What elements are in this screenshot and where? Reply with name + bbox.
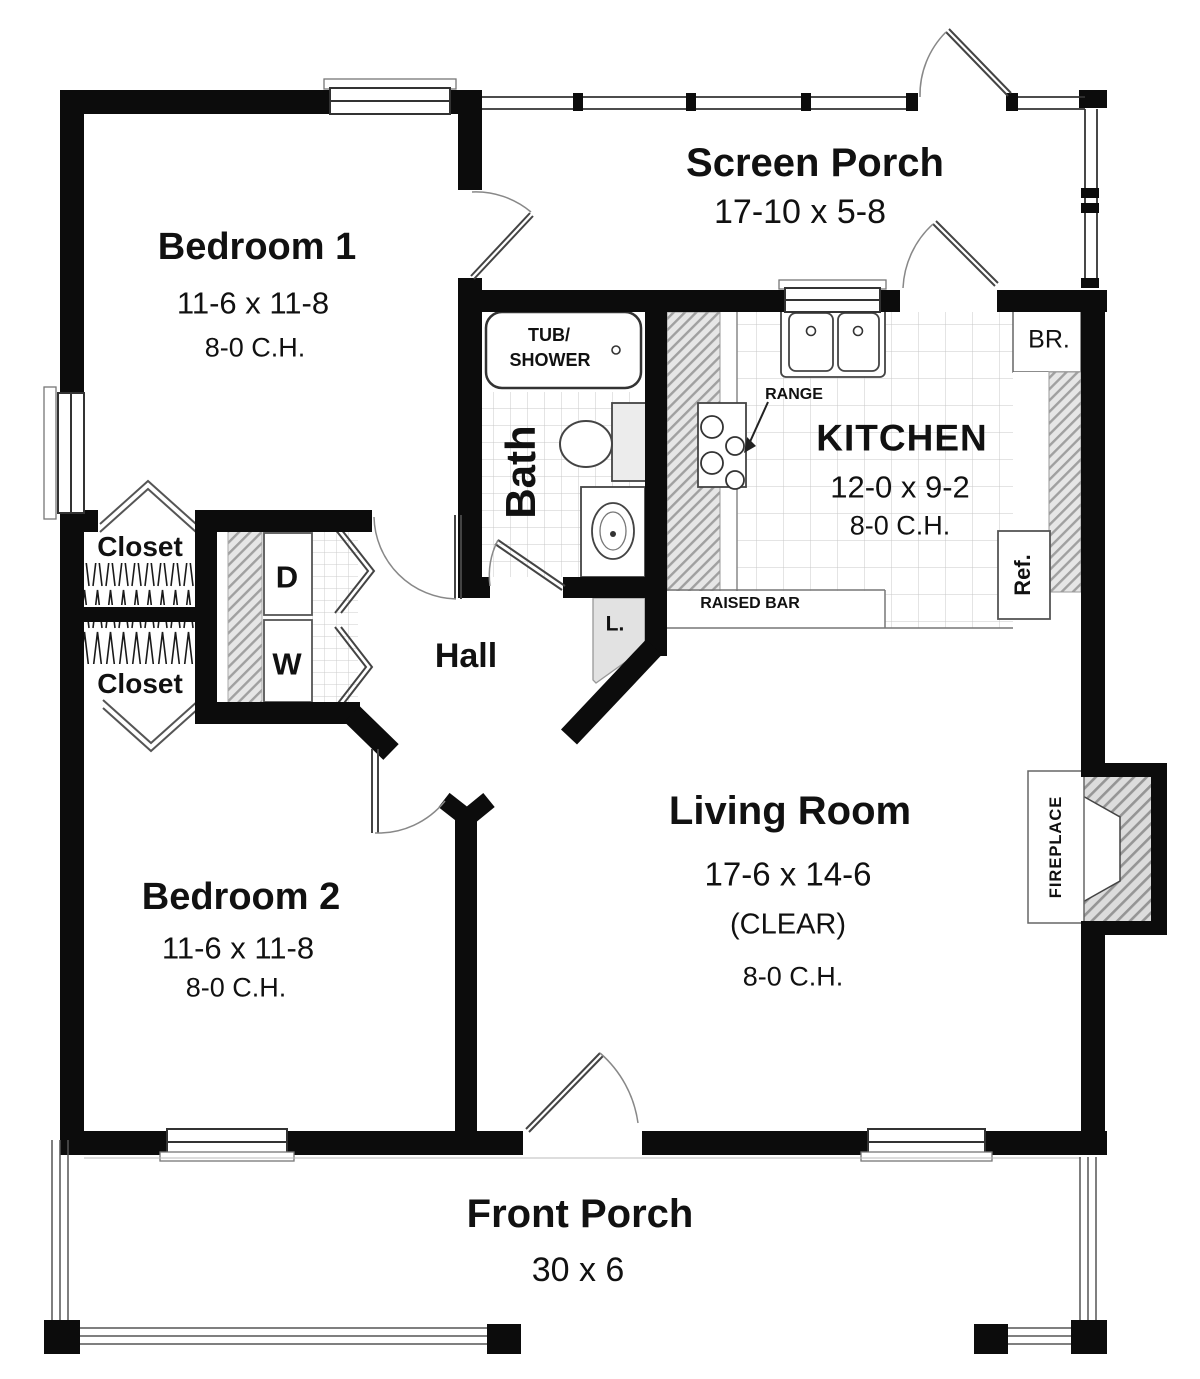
dryer-label: D bbox=[276, 562, 298, 593]
living-room-dims: 17-6 x 14-6 bbox=[705, 858, 872, 891]
wall-segment bbox=[455, 810, 477, 1140]
laundry-tile-floor bbox=[312, 527, 358, 704]
bedroom2-ceiling: 8-0 C.H. bbox=[186, 975, 287, 1002]
drain-icon bbox=[807, 327, 816, 336]
bedroom2-name: Bedroom 2 bbox=[142, 878, 340, 916]
door-swing-kitchen-porch bbox=[903, 224, 933, 288]
wall-segment bbox=[458, 90, 482, 190]
wall-segment bbox=[880, 290, 900, 312]
mullion-icon bbox=[686, 93, 696, 111]
screen-porch-name: Screen Porch bbox=[686, 143, 944, 183]
porch-posts bbox=[44, 1320, 1107, 1354]
wall-angled bbox=[444, 800, 467, 818]
wall-segment bbox=[60, 1131, 167, 1155]
wall-segment bbox=[60, 90, 84, 393]
wall-segment bbox=[60, 90, 330, 114]
mullion-icon bbox=[906, 93, 918, 111]
kitchen-ceiling: 8-0 C.H. bbox=[850, 513, 951, 540]
bedroom1-ceiling: 8-0 C.H. bbox=[205, 335, 306, 362]
raised-bar-label: RAISED BAR bbox=[700, 596, 800, 612]
porch-post bbox=[44, 1320, 80, 1354]
wall-segment bbox=[645, 290, 667, 656]
burner-icon bbox=[726, 437, 744, 455]
kitchen-dims: 12-0 x 9-2 bbox=[830, 472, 970, 503]
drain-icon bbox=[854, 327, 863, 336]
range-label: RANGE bbox=[765, 387, 823, 403]
laundry-shelf bbox=[228, 527, 262, 705]
toilet-icon bbox=[560, 421, 612, 467]
sink-basin-right bbox=[838, 313, 879, 371]
door-swing-bedroom1 bbox=[374, 517, 456, 599]
linen-closet-label: L. bbox=[606, 614, 625, 635]
wall-segment bbox=[195, 702, 360, 724]
hall-name: Hall bbox=[435, 639, 497, 673]
sink-basin-left bbox=[789, 313, 833, 371]
wall-segment bbox=[60, 607, 217, 622]
tub-label-line1: TUB/ bbox=[528, 326, 570, 344]
kitchen-counter-right bbox=[1049, 372, 1081, 592]
bifold-door-closet-icon bbox=[100, 481, 196, 524]
washer-label: W bbox=[272, 649, 301, 680]
porch-post bbox=[1071, 1320, 1107, 1354]
door-swing-front-door bbox=[600, 1053, 638, 1123]
fireplace-wall-cap bbox=[1151, 763, 1167, 935]
door-leaf-kitchen-porch bbox=[933, 221, 998, 286]
toilet-tank-icon bbox=[612, 403, 646, 481]
door-leaf-screen-door bbox=[946, 29, 1011, 96]
door-swing-screen-door bbox=[920, 32, 946, 97]
bath-name: Bath bbox=[500, 425, 542, 518]
front-porch-name: Front Porch bbox=[467, 1194, 694, 1234]
window-sill bbox=[44, 387, 56, 519]
mullion-icon bbox=[801, 93, 811, 111]
burner-icon bbox=[701, 452, 723, 474]
tub-drain-icon bbox=[612, 346, 620, 354]
wall-segment bbox=[563, 577, 647, 598]
closet-lower-label: Closet bbox=[97, 670, 183, 698]
wall-angled bbox=[467, 800, 489, 818]
fireplace-label: FIREPLACE bbox=[1048, 796, 1065, 899]
wall-segment bbox=[458, 290, 785, 312]
door-swing-bedroom2 bbox=[375, 801, 445, 833]
porch-rails bbox=[52, 1140, 1096, 1344]
porch-post bbox=[974, 1324, 1008, 1354]
living-room-ceiling: 8-0 C.H. bbox=[743, 964, 844, 991]
porch-post bbox=[487, 1324, 521, 1354]
bedroom1-dims: 11-6 x 11-8 bbox=[177, 288, 329, 319]
drain-icon bbox=[610, 531, 616, 537]
wall-angled bbox=[352, 714, 391, 752]
bedroom2-dims: 11-6 x 11-8 bbox=[162, 933, 314, 964]
bifold-door-closet-icon bbox=[103, 708, 199, 751]
mullion-icon bbox=[1081, 203, 1099, 213]
wall-segment bbox=[642, 1131, 868, 1155]
refrigerator-label: Ref. bbox=[1012, 554, 1034, 596]
door-leaf-bedroom1-porch bbox=[471, 213, 533, 279]
screen-porch-dims: 17-10 x 5-8 bbox=[714, 195, 886, 229]
wall-segment bbox=[1081, 935, 1105, 1155]
burner-icon bbox=[726, 471, 744, 489]
bedroom1-name: Bedroom 1 bbox=[158, 228, 356, 266]
front-porch-dims: 30 x 6 bbox=[532, 1253, 625, 1287]
mullion-icon bbox=[1081, 188, 1099, 198]
mullion-icon bbox=[1081, 278, 1099, 288]
closet-rod-upper bbox=[75, 563, 215, 605]
mullion-icon bbox=[573, 93, 583, 111]
wall-segment bbox=[997, 290, 1107, 312]
tub-label-line2: SHOWER bbox=[510, 351, 591, 369]
living-room-clear: (CLEAR) bbox=[730, 911, 846, 940]
wall-segment bbox=[200, 510, 372, 532]
closet-upper-label: Closet bbox=[97, 533, 183, 561]
kitchen-tile-floor-strip bbox=[885, 592, 1013, 628]
broom-closet-label: BR. bbox=[1028, 328, 1070, 353]
wall-segment bbox=[1081, 290, 1105, 763]
wall-segment bbox=[458, 577, 490, 598]
window-sill bbox=[861, 1152, 992, 1161]
porch-corner-post bbox=[1079, 90, 1107, 108]
wall-segment bbox=[287, 1131, 523, 1155]
floor-plan-canvas: Bedroom 1 11-6 x 11-8 8-0 C.H. Screen Po… bbox=[0, 0, 1200, 1379]
kitchen-name: KITCHEN bbox=[816, 420, 987, 457]
door-swing-bedroom1-porch bbox=[472, 192, 531, 212]
living-room-name: Living Room bbox=[669, 791, 911, 831]
window-sill bbox=[160, 1152, 294, 1161]
screen-wall-mullions bbox=[573, 93, 1099, 288]
door-leaf-front-door bbox=[526, 1053, 603, 1132]
burner-icon bbox=[701, 416, 723, 438]
closet-rod-lower bbox=[75, 622, 215, 664]
door-leaf-bedroom2 bbox=[372, 749, 378, 833]
